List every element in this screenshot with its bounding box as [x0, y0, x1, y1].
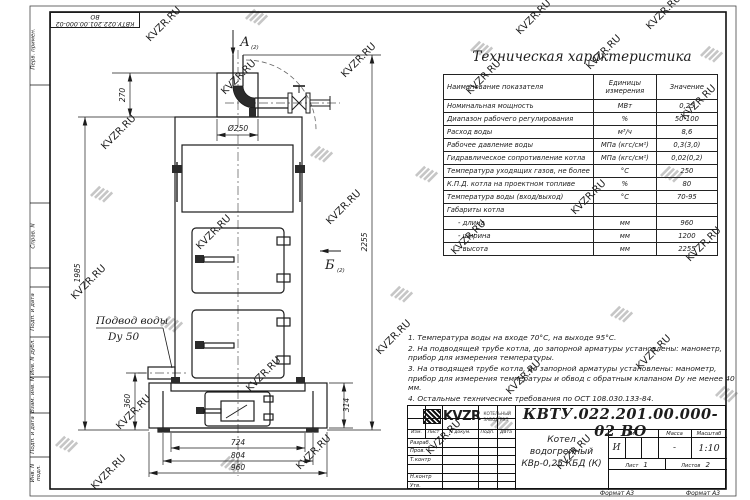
table-row: Расход водым³/ч8,6 [444, 126, 718, 139]
dim-arrowhead [133, 422, 138, 431]
col-izm: Изм. [408, 430, 425, 435]
margin-label-perv-primen: Перв. примен. [30, 12, 50, 85]
row-utv: Утв. [410, 483, 442, 489]
dim-arrowhead [297, 446, 306, 451]
margin-label-podp-data-2: Подп. и дата [30, 413, 50, 457]
table-row: - длинамм960 [444, 217, 718, 230]
title-block-doc-number: КВТУ.022.201.00.000-02 ВО [515, 406, 726, 429]
note-3: 3. На отводящей трубе котла, до запорной… [408, 364, 738, 393]
inlet-label-1: Подвод воды [95, 315, 168, 327]
sheets-value: 2 [705, 461, 709, 469]
dim-2255: 2255 [360, 232, 369, 251]
ash-door [196, 392, 273, 426]
product-name-line1: Котел водогрейный [515, 434, 608, 458]
dim-360: 360 [123, 394, 132, 409]
corner-doc-number-stamp: КВТУ.022.201.00.000-02 ВО [50, 12, 140, 28]
view-a-index: (2) [251, 45, 259, 51]
table-row: Габариты котла [444, 204, 718, 217]
dim-724: 724 [231, 438, 246, 447]
dim-arrowhead [171, 446, 180, 451]
watermark-text: KVZR.RU [294, 433, 333, 472]
col-podp: Подп. [478, 430, 497, 435]
dim-arrowhead [342, 420, 347, 429]
view-b-index: (2) [337, 268, 345, 274]
note-2: 2. На подводящей трубе котла, до запорно… [408, 344, 738, 363]
table-row: Температура воды (вход/выход)°С70-95 [444, 191, 718, 204]
row-tkontr: Т.контр [410, 457, 442, 463]
margin-label-vzam-inv: Взам. инв. N [30, 377, 50, 413]
engineering-drawing-sheet: { "doc_number": "КВТУ.022.201.00.000-02 … [0, 0, 750, 500]
title-block: КВТУ.022.201.00.000-02 ВО Изм. Лист N до… [407, 405, 726, 489]
table-row: Номинальная мощностьМВт0,25 [444, 100, 718, 113]
dim-arrowhead [319, 471, 328, 476]
dim-270: 270 [118, 88, 127, 103]
watermark-text: KVZR.RU [144, 5, 183, 44]
sheets-label: Листов [681, 463, 700, 469]
col-header-value: Значение [656, 75, 717, 100]
watermark-logo-icon [415, 163, 438, 186]
product-name: Котел водогрейный КВр-0,25 КБД (К) [515, 429, 608, 463]
massa-value: - [658, 443, 691, 453]
col-docnum: N докум. [442, 430, 478, 435]
col-list: Лист [425, 430, 442, 435]
table-row: - ширинамм1200 [444, 230, 718, 243]
watermark-text: KVZR.RU [114, 393, 153, 432]
table-header-row: Наименование показателя Единицы измерени… [444, 75, 718, 100]
watermark-text: KVZR.RU [514, 0, 553, 37]
watermark-logo-icon [55, 433, 78, 456]
row-razrab: Разраб. [410, 440, 442, 446]
table-row: Температура уходящих газов, не более°С25… [444, 165, 718, 178]
table-row: Диапазон рабочего регулирования%50-100 [444, 113, 718, 126]
dim-804: 804 [231, 451, 246, 460]
product-name-line2: КВр-0,25 КБД (К) [515, 458, 608, 470]
boiler-front-view [148, 55, 330, 432]
dim-arrowhead [83, 422, 88, 431]
dimension-lines [78, 55, 381, 477]
spec-table-title: Техническая характеристика [452, 49, 712, 65]
inlet-label-2: Dу 50 [107, 331, 140, 343]
table-row: Гидравлическое сопротивление котлаМПа (к… [444, 152, 718, 165]
watermark-logo-icon [610, 303, 633, 326]
dim-250: Ø250 [227, 124, 248, 133]
dim-1985: 1985 [73, 263, 82, 282]
watermark-logo-icon [245, 6, 268, 29]
row-prov: Пров. [410, 448, 442, 454]
massa-label: Масса [658, 431, 691, 437]
sheet-label: Лист [625, 463, 638, 469]
dim-arrowhead [128, 73, 133, 82]
dim-arrowhead [217, 133, 226, 138]
watermark-logo-icon [90, 183, 113, 206]
format-note-1: Формат А3 [573, 490, 661, 497]
scale-label: Масштаб [691, 431, 727, 437]
dim-arrowhead [149, 471, 158, 476]
note-4: 4. Остальные технические требования по О… [408, 394, 738, 404]
inlet-callout: Подвод воды Dу 50 [95, 315, 172, 368]
col-header-units: Единицы измерения [593, 75, 656, 100]
table-row: К.П.Д. котла на проектном топливе%80 [444, 178, 718, 191]
technical-notes: 1. Температура воды на входе 70°С, на вы… [408, 333, 738, 404]
margin-label-sprav-n: Справ. N [30, 203, 50, 268]
watermark-text: KVZR.RU [194, 213, 233, 252]
dim-arrowhead [250, 133, 259, 138]
dim-arrowhead [370, 422, 375, 431]
company-logo-text: KVZR [443, 409, 481, 424]
table-row: Рабочее давление водыМПа (кгс/см²)0,3(3,… [444, 139, 718, 152]
lit-value: И [608, 443, 625, 453]
sheet-value: 1 [643, 461, 647, 469]
watermark-text: KVZR.RU [99, 113, 138, 152]
sheets-cell: Листов 2 [665, 461, 726, 469]
watermark-text: KVZR.RU [89, 453, 128, 492]
margin-label-inv-podl: Инв. N подл. [30, 457, 50, 489]
col-header-name: Наименование показателя [444, 75, 594, 100]
watermark-logo-icon [310, 143, 333, 166]
dim-arrowhead [342, 383, 347, 392]
dim-arrowhead [163, 459, 172, 464]
centerlines [138, 50, 340, 476]
valve [288, 86, 330, 113]
watermark-text: KVZR.RU [644, 0, 683, 32]
margin-label-inv-dubl: Инв. N дубл. [30, 337, 50, 377]
watermark-text: KVZR.RU [324, 188, 363, 227]
col-data: Дата [497, 430, 515, 435]
dim-314: 314 [342, 398, 351, 413]
sheet-cell: Лист 1 [608, 461, 665, 469]
dim-arrowhead [133, 373, 138, 382]
spec-table: Наименование показателя Единицы измерени… [443, 74, 718, 256]
dim-960: 960 [231, 463, 246, 472]
watermark-logo-icon [390, 283, 413, 306]
table-row: - высотамм2255 [444, 243, 718, 256]
lit-label: Лит. [608, 431, 658, 437]
row-nkontr: Н.контр [410, 474, 442, 480]
view-a-label: А [239, 35, 250, 50]
note-1: 1. Температура воды на входе 70°С, на вы… [408, 333, 738, 343]
scale-value: 1:10 [691, 443, 727, 454]
dim-arrowhead [83, 117, 88, 126]
margin-label-podp-data-1: Подп. и дата [30, 287, 50, 337]
view-b-label: Б [324, 258, 335, 273]
format-note-2: Формат А3 [668, 490, 738, 497]
